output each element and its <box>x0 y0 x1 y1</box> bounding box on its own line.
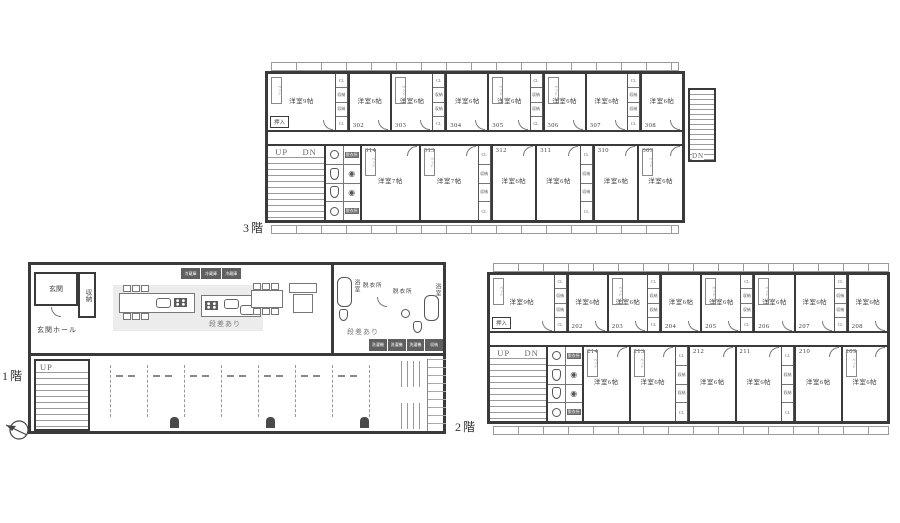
floor3-balcony-north <box>271 62 679 71</box>
wheel-stop <box>227 375 234 377</box>
dining-table <box>251 290 283 308</box>
chair-icon <box>132 285 140 292</box>
chair-icon <box>141 285 149 292</box>
parking-area <box>92 359 398 431</box>
closet-cell: CL <box>835 318 846 331</box>
dressing-right-label: 脱衣所 <box>393 287 413 295</box>
bed-box: ベッド <box>271 77 282 104</box>
wall <box>31 353 446 356</box>
washbasin-icon <box>548 347 565 366</box>
entrance-label: 玄関 <box>49 284 63 294</box>
closet-cell: 収納 <box>648 304 659 318</box>
floor2-corridor <box>490 331 887 347</box>
door-arc <box>420 120 430 130</box>
closet-cell: CL <box>336 74 347 88</box>
fridge-box: 冷蔵庫 <box>181 268 200 279</box>
room-cell: 洋室6帖310 <box>593 146 638 220</box>
bed-box: ベッド <box>493 278 504 305</box>
closet-cell: 収納 <box>628 103 639 117</box>
oshiire-closet: 押入 <box>270 116 289 128</box>
chair-icon <box>262 283 270 290</box>
bike-rack-hatch <box>401 403 425 429</box>
wheel-stop <box>338 375 345 377</box>
column-post <box>170 417 179 428</box>
door-arc <box>595 321 605 331</box>
closet-cell: 収納 <box>741 304 752 318</box>
closet-cell: CL <box>433 74 444 88</box>
room-size-label: 洋室6帖 <box>604 175 629 185</box>
step-note-kitchen: 段差あり <box>209 319 241 329</box>
floor3-south-rooms-row: 洋室7帖314ベッド洋室7帖313ベッドCL収納収納CL洋室6帖312洋室6帖3… <box>362 146 682 220</box>
toilet-icon <box>548 385 565 404</box>
closet-column: CL収納収納CL <box>554 275 567 331</box>
closet-cell: 収納 <box>676 385 687 404</box>
floor1-plan: 玄関 収納 玄関ホール 冷蔵庫冷蔵庫冷蔵庫 段差あり <box>28 262 446 434</box>
parking-stall-divider <box>110 365 111 417</box>
wheel-stop <box>116 375 123 377</box>
closet-cell: CL <box>555 275 566 289</box>
dn-label: DN <box>303 147 317 157</box>
kitchen-sink-icon <box>156 298 171 308</box>
room-size-label: 洋室6帖 <box>802 296 827 306</box>
door-arc <box>568 146 578 156</box>
bed-box: ベッド <box>587 350 598 377</box>
kitchen-island-1 <box>119 293 195 313</box>
room-size-label: 洋室6帖 <box>455 95 480 105</box>
laundry-box: 収納 <box>425 339 443 351</box>
entrance-room: 玄関 <box>34 272 78 306</box>
column-post <box>360 417 369 428</box>
closet-cell: 収納 <box>433 88 444 102</box>
floor3-plan: 洋室9帖301ベッド押入CL収納収納CL洋室6帖302洋室6帖303ベッドCL収… <box>265 62 693 238</box>
room-size-label: 洋室6帖 <box>502 175 527 185</box>
room-number: 305 <box>492 122 503 129</box>
room-size-label: 洋室7帖 <box>437 175 462 185</box>
fridge-box: 冷蔵庫 <box>201 268 220 279</box>
closet-cell: CL <box>531 117 542 130</box>
room-cell: 洋室6帖214ベッド <box>584 347 629 421</box>
closet-cell: 収納 <box>782 366 793 385</box>
door-arc <box>663 347 673 357</box>
floor3-rooms-north: 洋室9帖301ベッド押入CL収納収納CL洋室6帖302洋室6帖303ベッドCL収… <box>268 74 682 130</box>
closet-cell: CL <box>581 146 592 165</box>
room-cell: 洋室6帖302 <box>348 74 390 130</box>
shower-icon: ◉ <box>566 366 583 385</box>
room-cell: 洋室6帖306ベッド <box>543 74 585 130</box>
room-cell: 洋室6帖210 <box>794 347 841 421</box>
entrance-hall-label: 玄関ホール <box>37 325 77 335</box>
room-size-label: 洋室6帖 <box>594 95 619 105</box>
wheel-stop <box>313 375 320 377</box>
parking-stall-divider <box>295 365 296 417</box>
column-post <box>266 417 275 428</box>
door-arc <box>769 347 779 357</box>
room-number: 206 <box>758 323 769 330</box>
washbasin-icon <box>326 202 343 220</box>
bed-box: ベッド <box>424 149 435 176</box>
wheel-stop <box>276 375 283 377</box>
closet-cell: 収納 <box>741 289 752 303</box>
bed-box: ベッド <box>634 350 645 377</box>
floor3-building: 洋室9帖301ベッド押入CL収納収納CL洋室6帖302洋室6帖303ベッドCL収… <box>265 71 685 223</box>
door-arc <box>573 120 583 130</box>
oshiire-closet: 押入 <box>492 317 511 329</box>
wheel-stop <box>264 375 271 377</box>
door-arc <box>378 120 388 130</box>
closet-column: CL収納収納CL <box>478 146 491 220</box>
closet-cell: 収納 <box>782 385 793 404</box>
door-arc <box>670 146 680 156</box>
closet-cell: 収納 <box>676 366 687 385</box>
toilet-icon <box>326 184 343 203</box>
closet-cell: 収納 <box>531 103 542 117</box>
room-cell: 洋室6帖211 <box>735 347 782 421</box>
closet-cell: 収納 <box>835 289 846 303</box>
up-label: UP <box>40 362 53 372</box>
room-size-label: 洋室6帖 <box>746 376 771 386</box>
floor2-building: 洋室9帖201ベッド押入CL収納収納CL洋室6帖202洋室6帖203ベッドCL収… <box>487 272 890 424</box>
toilet-icon <box>413 321 422 333</box>
room-number: 205 <box>705 323 716 330</box>
room-number: 202 <box>572 323 583 330</box>
floor3-balcony-south <box>271 225 679 234</box>
floor3-rooms-south: UPDN 脱衣所 ◉ ◉ 脱衣所 洋室7帖 <box>268 146 682 220</box>
room-cell: 洋室6帖208 <box>847 275 887 331</box>
bed-box: ベッド <box>705 278 716 305</box>
closet-column: CL収納収納CL <box>740 275 753 331</box>
up-label: UP <box>275 147 288 157</box>
closet-cell: 収納 <box>531 88 542 102</box>
room-number: 308 <box>645 122 656 129</box>
entrance-storage: 収納 <box>78 272 96 318</box>
room-cell: 洋室6帖312 <box>491 146 536 220</box>
room-size-label: 洋室6帖 <box>546 175 571 185</box>
closet-cell: 収納 <box>479 184 490 203</box>
closet-column: CL収納収納CL <box>647 275 660 331</box>
closet-column: CL収納収納CL <box>781 347 794 421</box>
closet-cell: CL <box>782 403 793 421</box>
dressing-room-label: 脱衣所 <box>344 202 361 220</box>
dressing-room-label: 脱衣所 <box>566 403 583 421</box>
room-cell: 洋室6帖307 <box>585 74 627 130</box>
room-size-label: 洋室6帖 <box>640 376 665 386</box>
wheel-stop <box>239 375 246 377</box>
room-size-label: 洋室6帖 <box>806 376 831 386</box>
closet-cell: CL <box>628 117 639 130</box>
door-arc <box>728 321 738 331</box>
floor2-fixture-column <box>548 347 566 421</box>
room-cell: 洋室6帖204 <box>660 275 700 331</box>
floor2-balcony-south <box>493 426 889 435</box>
floor2-balcony-north <box>493 263 889 272</box>
room-size-label: 洋室9帖 <box>509 296 534 306</box>
chair-icon <box>253 283 261 290</box>
closet-cell: 収納 <box>835 304 846 318</box>
room-number: 210 <box>799 348 810 355</box>
room-size-label: 洋室6帖 <box>669 296 694 306</box>
wheel-stop <box>301 375 308 377</box>
door-arc <box>625 146 635 156</box>
exterior-stair-dn-label: DN <box>692 152 704 160</box>
room-number: 207 <box>799 323 810 330</box>
closet-cell: CL <box>782 347 793 366</box>
wheel-stop <box>350 375 357 377</box>
room-number: 306 <box>548 122 559 129</box>
room-size-label: 洋室6帖 <box>594 376 619 386</box>
washbasin-icon <box>401 309 410 318</box>
closet-cell: 収納 <box>479 165 490 184</box>
chair-icon <box>123 313 131 320</box>
door-arc <box>377 297 387 307</box>
step-note-bath: 段差あり <box>347 327 379 337</box>
ramp-hatch <box>427 359 446 431</box>
room-cell: 洋室6帖304 <box>445 74 487 130</box>
door-arc <box>875 347 885 357</box>
door-arc <box>51 307 61 317</box>
floor3-corridor <box>268 130 682 146</box>
floor2-sanitary-block: 脱衣所 ◉ ◉ 脱衣所 <box>548 347 584 421</box>
closet-cell: 収納 <box>648 289 659 303</box>
room-cell: 洋室9帖301ベッド押入 <box>268 74 335 130</box>
closet-column: CL収納収納CL <box>530 74 543 130</box>
floor1-staircase: UP <box>34 359 90 431</box>
door-arc <box>523 146 533 156</box>
parking-stall-divider <box>184 365 185 417</box>
fridge-box: 冷蔵庫 <box>222 268 241 279</box>
door-arc <box>822 321 832 331</box>
door-arc <box>615 120 625 130</box>
bed-box: ベッド <box>642 149 653 176</box>
room-number: 311 <box>540 147 551 154</box>
bed-box: ベッド <box>492 77 503 104</box>
room-cell: 洋室6帖213ベッド <box>629 347 676 421</box>
closet-column: CL収納収納CL <box>432 74 445 130</box>
closet-cell: CL <box>531 74 542 88</box>
closet-cell: CL <box>676 403 687 421</box>
closet-cell: CL <box>479 146 490 165</box>
room-cell: 洋室6帖206ベッド <box>753 275 793 331</box>
room-cell: 洋室6帖202 <box>567 275 607 331</box>
dressing-room-label: 脱衣所 <box>344 146 361 165</box>
floor3-caption: 3階 <box>243 219 265 236</box>
chair-icon <box>262 308 270 315</box>
room-number: 212 <box>693 348 704 355</box>
closet-cell: CL <box>741 318 752 331</box>
room-cell: 洋室7帖313ベッド <box>419 146 478 220</box>
room-size-label: 洋室7帖 <box>378 175 403 185</box>
floorplan-canvas: 洋室9帖301ベッド押入CL収納収納CL洋室6帖302洋室6帖303ベッドCL収… <box>0 0 900 523</box>
closet-cell: CL <box>648 318 659 331</box>
stove-burner-icon <box>174 298 187 307</box>
sofa-table-icon <box>293 294 313 313</box>
closet-cell: 収納 <box>581 165 592 184</box>
bed-box: ベッド <box>395 77 406 104</box>
room-cell: 洋室6帖309ベッド <box>637 146 682 220</box>
parking-stall-divider <box>369 365 370 417</box>
room-number: 312 <box>496 147 507 154</box>
bed-box: ベッド <box>846 350 857 377</box>
sofa-icon <box>289 283 317 293</box>
room-cell: 洋室6帖203ベッド <box>607 275 647 331</box>
door-arc <box>323 120 333 130</box>
storage-label: 収納 <box>82 289 92 302</box>
dn-label: DN <box>525 348 539 358</box>
bed-box: ベッド <box>365 149 376 176</box>
chair-icon <box>123 285 131 292</box>
wheel-stop <box>190 375 197 377</box>
kitchen-sink-icon <box>224 299 239 309</box>
parking-stall-divider <box>221 365 222 417</box>
floor3-shower-column: 脱衣所 ◉ ◉ 脱衣所 <box>344 146 361 220</box>
closet-cell: 収納 <box>628 88 639 102</box>
wheel-stop <box>202 375 209 377</box>
closet-cell: 収納 <box>336 88 347 102</box>
room-size-label: 洋室6帖 <box>700 376 725 386</box>
door-arc <box>688 321 698 331</box>
closet-cell: CL <box>479 202 490 220</box>
toilet-icon <box>339 309 348 321</box>
room-size-label: 洋室6帖 <box>648 175 673 185</box>
shower-icon: ◉ <box>344 184 361 203</box>
room-number: 204 <box>665 323 676 330</box>
room-size-label: 洋室6帖 <box>856 296 881 306</box>
room-cell: 洋室7帖314ベッド <box>362 146 419 220</box>
closet-cell: CL <box>555 318 566 331</box>
wheel-stop <box>165 375 172 377</box>
north-arrow-icon <box>4 418 32 442</box>
room-cell: 洋室6帖205ベッド <box>700 275 740 331</box>
shower-icon: ◉ <box>566 385 583 404</box>
closet-column: CL収納収納CL <box>335 74 348 130</box>
room-number: 310 <box>598 147 609 154</box>
door-arc <box>782 321 792 331</box>
closet-cell: CL <box>835 275 846 289</box>
door-arc <box>518 120 528 130</box>
floor3-exterior-stair: DN <box>688 88 716 162</box>
floor2-shower-column: 脱衣所 ◉ ◉ 脱衣所 <box>566 347 583 421</box>
room-number: 203 <box>612 323 623 330</box>
parking-stall-divider <box>332 365 333 417</box>
chair-icon <box>132 313 140 320</box>
toilet-icon <box>548 366 565 385</box>
room-cell: 洋室6帖212 <box>688 347 735 421</box>
closet-cell: CL <box>433 117 444 130</box>
closet-column: CL収納収納CL <box>834 275 847 331</box>
door-arc <box>542 321 552 331</box>
closet-cell: 収納 <box>581 184 592 203</box>
room-size-label: 洋室6帖 <box>575 296 600 306</box>
laundry-box: 洗濯機 <box>407 339 425 351</box>
door-arc <box>723 347 733 357</box>
stove-burner-icon <box>205 301 218 310</box>
floor2-south-rooms-row: 洋室6帖214ベッド洋室6帖213ベッドCL収納収納CL洋室6帖212洋室6帖2… <box>584 347 887 421</box>
chair-icon <box>271 308 279 315</box>
wheel-stop <box>153 375 160 377</box>
floor3-staircase: UPDN <box>268 146 326 220</box>
closet-column: CL収納収納CL <box>580 146 593 220</box>
door-arc <box>875 321 885 331</box>
dressing-left-label: 脱衣所 <box>363 281 383 289</box>
bed-box: ベッド <box>612 278 623 305</box>
closet-cell: CL <box>628 74 639 88</box>
room-cell: 洋室9帖201ベッド押入 <box>490 275 554 331</box>
door-arc <box>829 347 839 357</box>
closet-cell: 収納 <box>336 103 347 117</box>
dressing-room-label: 脱衣所 <box>566 347 583 366</box>
laundry-box: 洗濯機 <box>369 339 387 351</box>
laundry-box: 洗濯機 <box>388 339 406 351</box>
closet-column: CL収納収納CL <box>675 347 688 421</box>
bathtub-icon <box>424 295 439 321</box>
floor1-caption: 1階 <box>2 367 24 384</box>
room-size-label: 洋室6帖 <box>852 376 877 386</box>
room-number: 307 <box>590 122 601 129</box>
closet-cell: CL <box>581 202 592 220</box>
door-arc <box>475 120 485 130</box>
room-number: 208 <box>852 323 863 330</box>
chair-icon <box>253 308 261 315</box>
door-arc <box>407 146 417 156</box>
room-cell: 洋室6帖305ベッド <box>487 74 529 130</box>
washbasin-icon <box>326 146 343 165</box>
closet-cell: CL <box>741 275 752 289</box>
room-size-label: 洋室6帖 <box>650 95 675 105</box>
room-cell: 洋室6帖303ベッド <box>390 74 432 130</box>
wheel-stop <box>128 375 135 377</box>
floor2-staircase: UPDN <box>490 347 548 421</box>
toilet-icon <box>326 165 343 184</box>
bed-box: ベッド <box>548 77 559 104</box>
chair-icon <box>271 283 279 290</box>
closet-cell: CL <box>336 117 347 130</box>
shower-icon: ◉ <box>344 165 361 184</box>
closet-cell: 収納 <box>555 289 566 303</box>
floor3-fixture-column <box>326 146 344 220</box>
floor3-sanitary-block: 脱衣所 ◉ ◉ 脱衣所 <box>326 146 362 220</box>
washbasin-icon <box>548 403 565 421</box>
bed-box: ベッド <box>758 278 769 305</box>
bath-left-label: 浴室 <box>352 279 361 293</box>
room-cell: 洋室6帖209ベッド <box>841 347 888 421</box>
room-number: 304 <box>450 122 461 129</box>
room-cell: 洋室6帖311 <box>535 146 580 220</box>
door-arc <box>635 321 645 331</box>
closet-cell: CL <box>676 347 687 366</box>
up-label: UP <box>497 348 510 358</box>
closet-cell: CL <box>648 275 659 289</box>
closet-cell: 収納 <box>555 304 566 318</box>
floor2-rooms-north: 洋室9帖201ベッド押入CL収納収納CL洋室6帖202洋室6帖203ベッドCL収… <box>490 275 887 331</box>
laundry-row: 洗濯機洗濯機洗濯機収納 <box>369 339 443 351</box>
closet-column: CL収納収納CL <box>627 74 640 130</box>
floor2-caption: 2階 <box>455 418 477 435</box>
parking-stall-divider <box>147 365 148 417</box>
room-size-label: 洋室6帖 <box>358 95 383 105</box>
fridge-row: 冷蔵庫冷蔵庫冷蔵庫 <box>181 268 241 279</box>
door-arc <box>670 120 680 130</box>
room-size-label: 洋室9帖 <box>289 95 314 105</box>
floor2-rooms-south: UPDN 脱衣所 ◉ ◉ 脱衣所 洋室6帖 <box>490 347 887 421</box>
closet-cell: 収納 <box>433 103 444 117</box>
bike-rack-hatch <box>401 361 425 387</box>
bathtub-icon <box>337 277 352 307</box>
room-cell: 洋室6帖308 <box>640 74 682 130</box>
room-cell: 洋室6帖207 <box>794 275 834 331</box>
wall <box>331 265 334 355</box>
room-number: 302 <box>353 122 364 129</box>
door-arc <box>617 347 627 357</box>
room-number: 211 <box>740 348 751 355</box>
